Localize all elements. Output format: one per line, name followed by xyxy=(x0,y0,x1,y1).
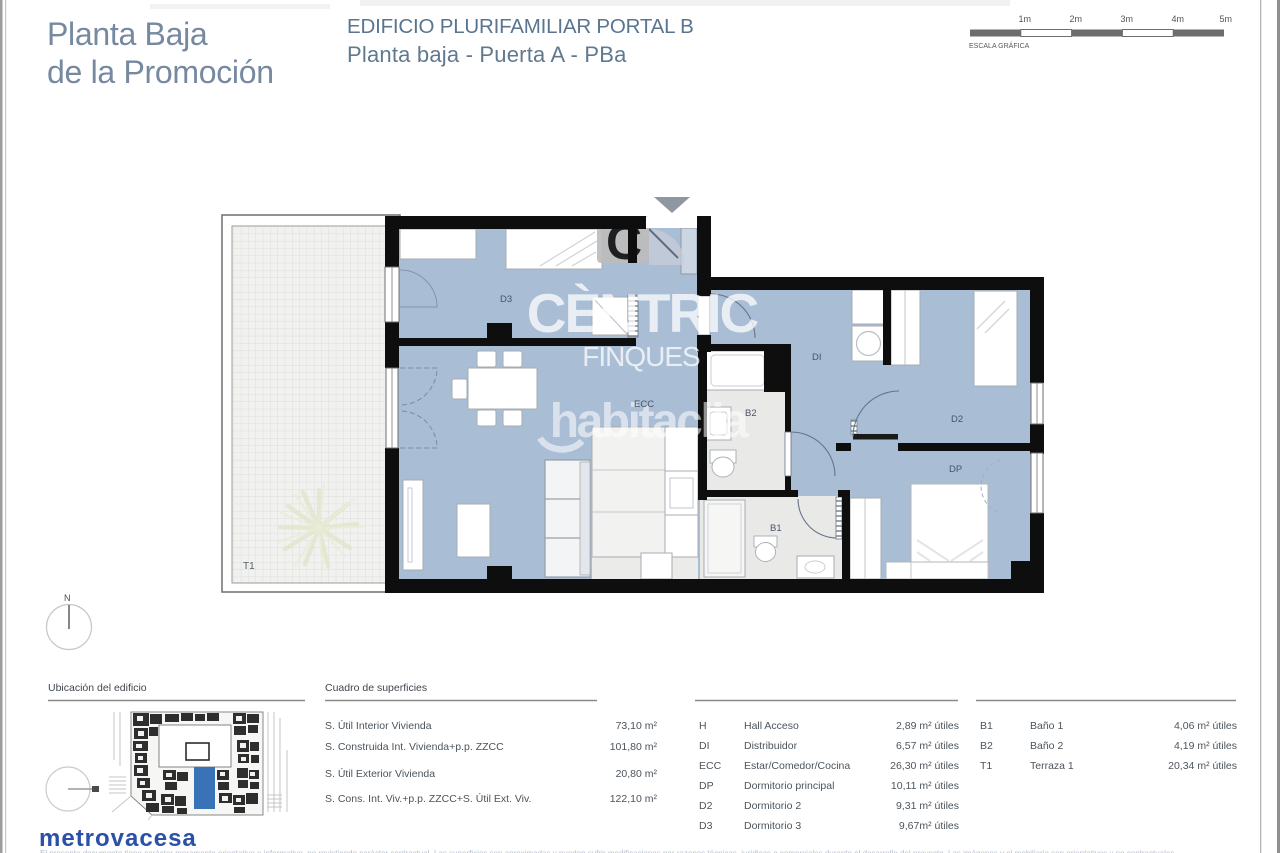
svg-text:DP: DP xyxy=(699,780,714,792)
svg-text:73,10 m²: 73,10 m² xyxy=(616,720,658,732)
svg-text:26,30 m² útiles: 26,30 m² útiles xyxy=(890,760,959,772)
svg-text:ECC: ECC xyxy=(699,760,722,772)
svg-text:T1: T1 xyxy=(980,760,992,772)
svg-text:4m: 4m xyxy=(1171,14,1184,24)
svg-text:D2: D2 xyxy=(951,414,963,425)
svg-text:ESCALA GRÁFICA: ESCALA GRÁFICA xyxy=(969,41,1030,50)
svg-text:Hall Acceso: Hall Acceso xyxy=(744,720,799,732)
svg-text:5m: 5m xyxy=(1219,14,1232,24)
svg-text:DI: DI xyxy=(812,352,822,363)
svg-text:9,31 m² útiles: 9,31 m² útiles xyxy=(896,800,959,812)
svg-text:Dormitorio 2: Dormitorio 2 xyxy=(744,800,801,812)
svg-text:FINQUES: FINQUES xyxy=(582,341,700,372)
svg-text:S. Cons. Int. Viv.+p.p. ZZCC+S: S. Cons. Int. Viv.+p.p. ZZCC+S. Útil Ext… xyxy=(325,792,531,805)
svg-text:2,89 m² útiles: 2,89 m² útiles xyxy=(896,720,959,732)
svg-text:DP: DP xyxy=(949,464,962,475)
svg-text:D3: D3 xyxy=(699,820,713,832)
svg-text:H: H xyxy=(699,720,707,732)
svg-text:metrovacesa: metrovacesa xyxy=(39,825,197,852)
svg-text:4,06 m² útiles: 4,06 m² útiles xyxy=(1174,720,1237,732)
svg-text:4,19 m² útiles: 4,19 m² útiles xyxy=(1174,740,1237,752)
svg-text:Baño 1: Baño 1 xyxy=(1030,720,1063,732)
svg-text:Estar/Comedor/Cocina: Estar/Comedor/Cocina xyxy=(744,760,850,772)
svg-text:D2: D2 xyxy=(699,800,713,812)
svg-text:Ubicación del edificio: Ubicación del edificio xyxy=(48,682,147,694)
svg-text:D3: D3 xyxy=(500,294,512,305)
svg-text:Dormitorio principal: Dormitorio principal xyxy=(744,780,834,792)
svg-text:101,80 m²: 101,80 m² xyxy=(610,741,658,753)
svg-text:122,10 m²: 122,10 m² xyxy=(610,793,658,805)
svg-text:de la Promoción: de la Promoción xyxy=(47,54,274,90)
svg-text:20,80 m²: 20,80 m² xyxy=(616,768,658,780)
svg-text:N: N xyxy=(64,593,71,603)
svg-text:S. Construida Int. Vivienda+p.: S. Construida Int. Vivienda+p.p. ZZCC xyxy=(325,741,504,753)
svg-text:Terraza 1: Terraza 1 xyxy=(1030,760,1074,772)
svg-text:Dormitorio 3: Dormitorio 3 xyxy=(744,820,801,832)
svg-text:Planta baja - Puerta A - PBa: Planta baja - Puerta A - PBa xyxy=(347,42,627,67)
svg-text:El presente documento tiene ca: El presente documento tiene carácter mer… xyxy=(40,849,1177,853)
svg-text:20,34 m² útiles: 20,34 m² útiles xyxy=(1168,760,1237,772)
svg-text:S. Útil Exterior Vivienda: S. Útil Exterior Vivienda xyxy=(325,767,435,780)
svg-text:Baño 2: Baño 2 xyxy=(1030,740,1063,752)
svg-text:9,67m² útiles: 9,67m² útiles xyxy=(899,820,959,832)
svg-text:B1: B1 xyxy=(980,720,993,732)
svg-text:T1: T1 xyxy=(243,561,255,572)
svg-text:CÈNTRIC: CÈNTRIC xyxy=(527,282,759,344)
svg-text:S. Útil Interior Vivienda: S. Útil Interior Vivienda xyxy=(325,719,432,732)
svg-text:2m: 2m xyxy=(1069,14,1082,24)
svg-text:B2: B2 xyxy=(980,740,993,752)
svg-text:10,11 m² útiles: 10,11 m² útiles xyxy=(891,780,959,792)
svg-text:Planta Baja: Planta Baja xyxy=(47,16,208,52)
svg-text:6,57 m² útiles: 6,57 m² útiles xyxy=(896,740,959,752)
svg-text:DI: DI xyxy=(699,740,710,752)
svg-text:1m: 1m xyxy=(1018,14,1031,24)
svg-text:3m: 3m xyxy=(1120,14,1133,24)
svg-text:EDIFICIO PLURIFAMILIAR PORTAL: EDIFICIO PLURIFAMILIAR PORTAL B xyxy=(347,15,694,38)
svg-text:B1: B1 xyxy=(770,523,782,534)
svg-text:ECC: ECC xyxy=(634,399,654,410)
svg-text:Distribuidor: Distribuidor xyxy=(744,740,798,752)
svg-text:B2: B2 xyxy=(745,408,757,419)
svg-text:Cuadro de superficies: Cuadro de superficies xyxy=(325,682,427,694)
